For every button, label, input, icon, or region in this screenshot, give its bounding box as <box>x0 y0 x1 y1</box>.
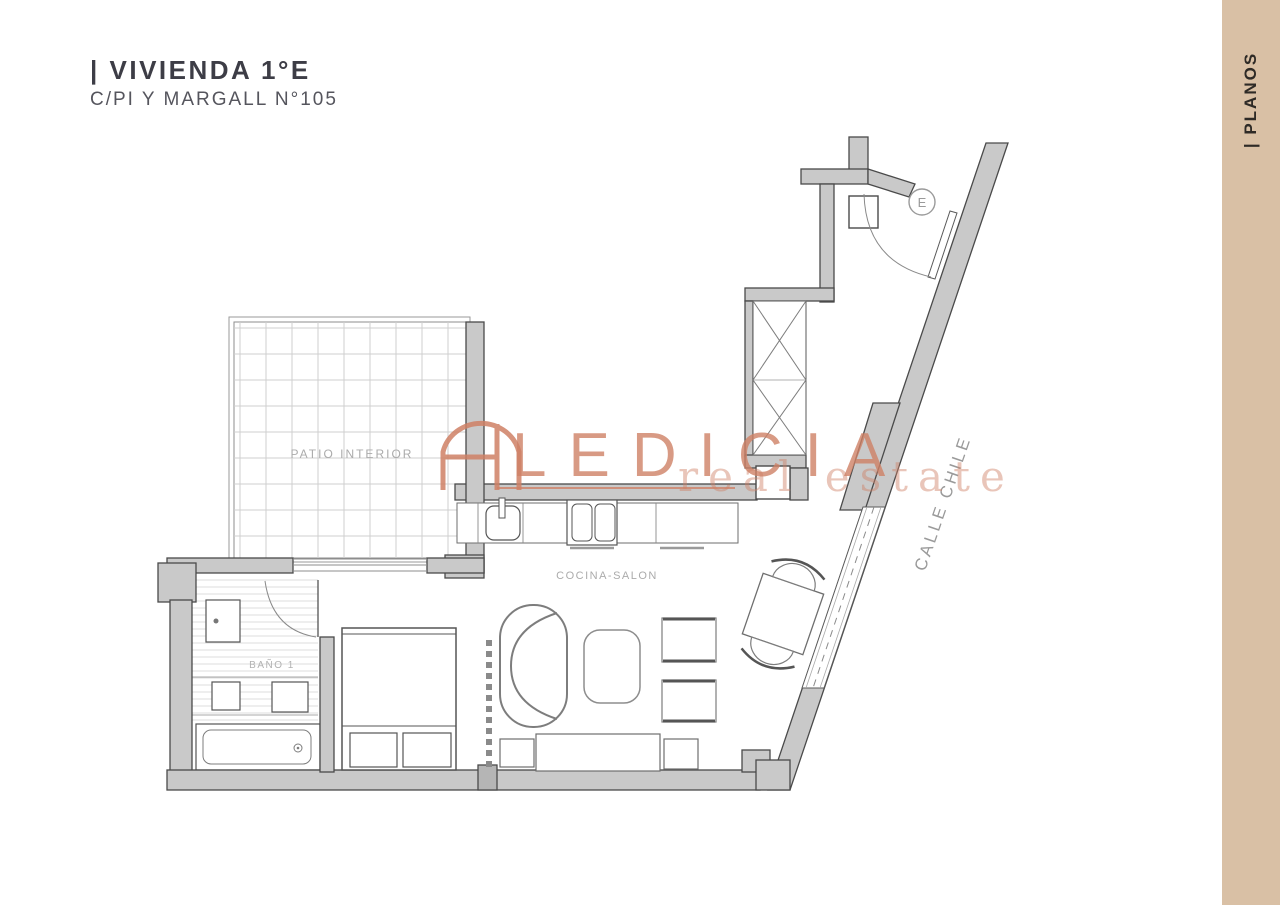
wall-left <box>170 600 192 772</box>
bed <box>342 628 456 770</box>
bathtub <box>196 724 320 770</box>
wall-entry-top <box>801 169 868 184</box>
corner-column <box>756 760 790 790</box>
room-label-bano: BAÑO 1 <box>249 658 295 671</box>
armchair <box>662 618 716 662</box>
curtain-pillar <box>478 765 497 790</box>
armchair <box>662 680 716 722</box>
wall-shaft-top <box>745 288 834 301</box>
toilet <box>206 600 240 642</box>
entry-cabinet <box>849 196 878 228</box>
brand-tagline: real estate <box>678 452 1015 501</box>
wall-top-stub <box>849 137 868 173</box>
coffee-table <box>584 630 640 703</box>
pillow <box>350 733 397 767</box>
cooktop <box>567 500 617 545</box>
tv-unit <box>500 734 698 771</box>
sofa <box>500 605 567 727</box>
kitchen-counter <box>457 498 738 548</box>
toilet-flush-dot <box>214 619 219 624</box>
bathroom: BAÑO 1 <box>192 580 320 770</box>
wall-bath-bed <box>320 637 334 772</box>
wall-strip-right <box>427 558 484 573</box>
wall-corridor-left <box>820 184 834 302</box>
sidebar-label: | PLANOS <box>1241 52 1261 148</box>
wall-entry-angled <box>868 169 915 197</box>
washer-unit <box>272 682 308 712</box>
room-label-patio: PATIO INTERIOR <box>291 447 414 461</box>
pillow <box>403 733 451 767</box>
page-title: | VIVIENDA 1°E <box>90 55 311 86</box>
svg-text:E: E <box>918 195 927 210</box>
wall-left-block <box>158 563 196 602</box>
page-subtitle: C/PI Y MARGALL N°105 <box>90 89 338 111</box>
room-label-cocina: COCINA-SALON <box>556 570 658 582</box>
page: PATIO INTERIOR <box>0 0 1280 905</box>
bathroom-sink <box>212 682 240 710</box>
entrance-marker: E <box>909 189 935 215</box>
wall-bottom <box>167 770 760 790</box>
